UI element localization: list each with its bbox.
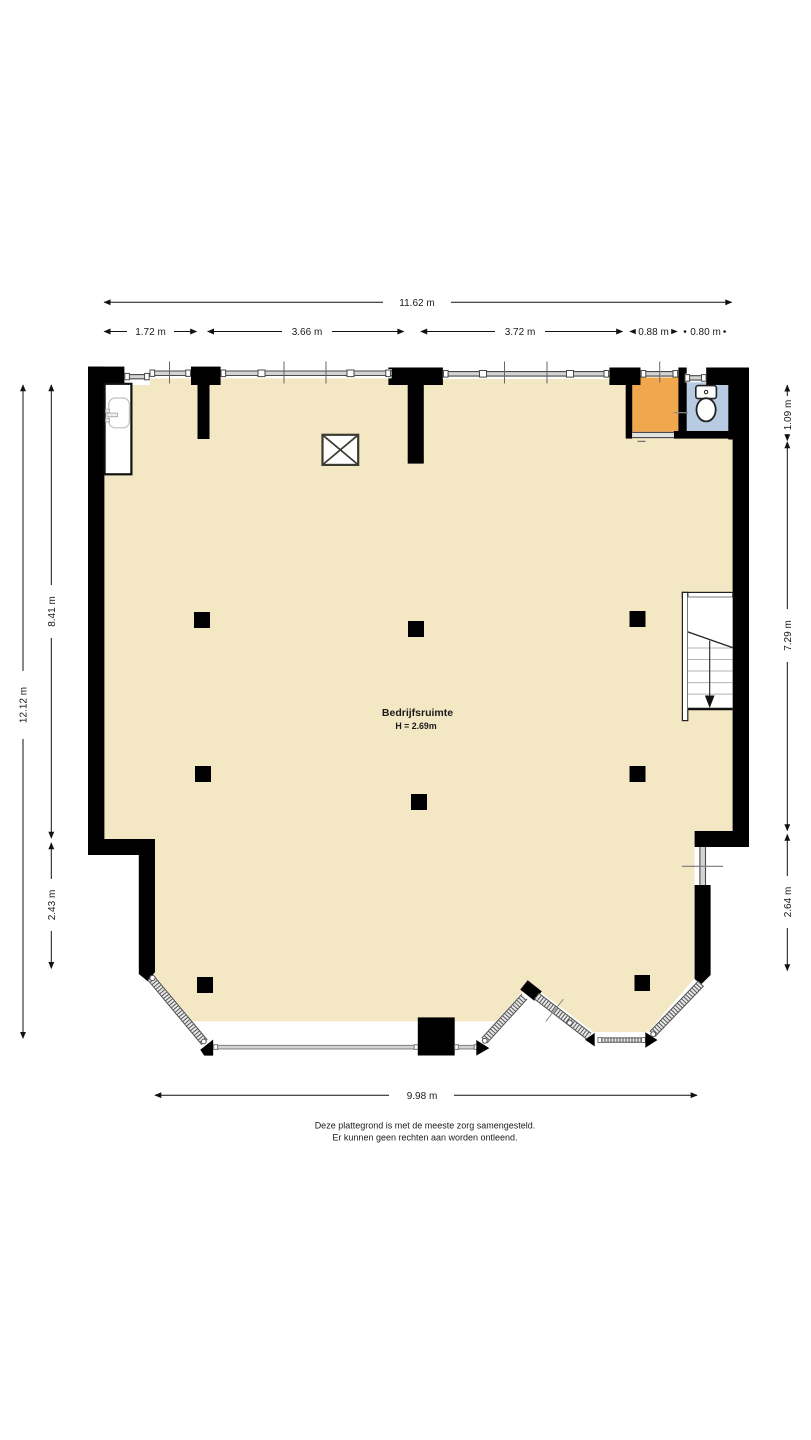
svg-text:9.98 m: 9.98 m bbox=[407, 1091, 438, 1102]
svg-text:3.66 m: 3.66 m bbox=[292, 327, 323, 338]
svg-text:2.43 m: 2.43 m bbox=[47, 890, 58, 921]
svg-text:0.88 m: 0.88 m bbox=[638, 327, 669, 338]
svg-text:8.41 m: 8.41 m bbox=[47, 596, 58, 627]
svg-text:Er kunnen geen rechten aan wor: Er kunnen geen rechten aan worden ontlee… bbox=[332, 1133, 517, 1143]
svg-text:1.09 m: 1.09 m bbox=[783, 400, 794, 431]
svg-text:12.12 m: 12.12 m bbox=[19, 687, 30, 723]
svg-text:11.62 m: 11.62 m bbox=[399, 298, 434, 309]
svg-text:0.80 m: 0.80 m bbox=[690, 327, 721, 338]
svg-text:1.72 m: 1.72 m bbox=[135, 327, 166, 338]
svg-text:Bedrijfsruimte: Bedrijfsruimte bbox=[382, 707, 453, 719]
svg-text:7.29 m: 7.29 m bbox=[783, 620, 794, 651]
svg-text:3.72 m: 3.72 m bbox=[505, 327, 536, 338]
svg-text:H = 2.69m: H = 2.69m bbox=[395, 721, 436, 731]
svg-text:2.64 m: 2.64 m bbox=[783, 887, 794, 918]
svg-text:Deze plattegrond is met de mee: Deze plattegrond is met de meeste zorg s… bbox=[315, 1121, 536, 1131]
